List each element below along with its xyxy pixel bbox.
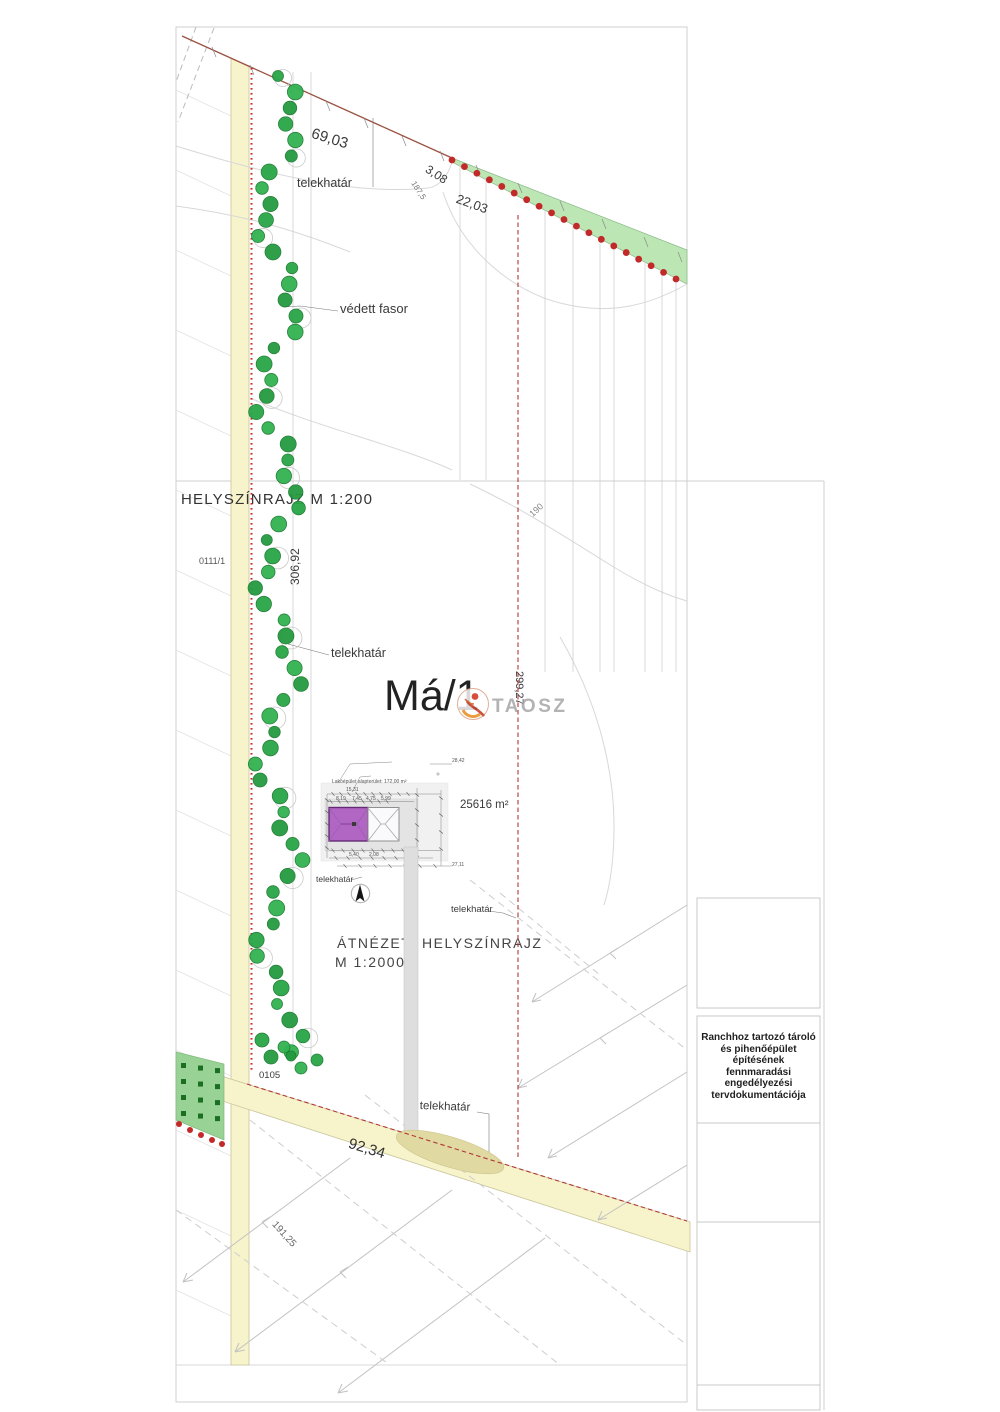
protected-tree-row: [248, 70, 323, 1075]
red-boundary-marks: [247, 68, 687, 1221]
site-plan-page: 69,03 telekhatár 3,08 22,03 187,5 védett…: [0, 0, 1000, 1412]
overlay-graphics: [0, 0, 1000, 1412]
driveway: [404, 847, 418, 1147]
road-widening: [392, 1121, 508, 1182]
